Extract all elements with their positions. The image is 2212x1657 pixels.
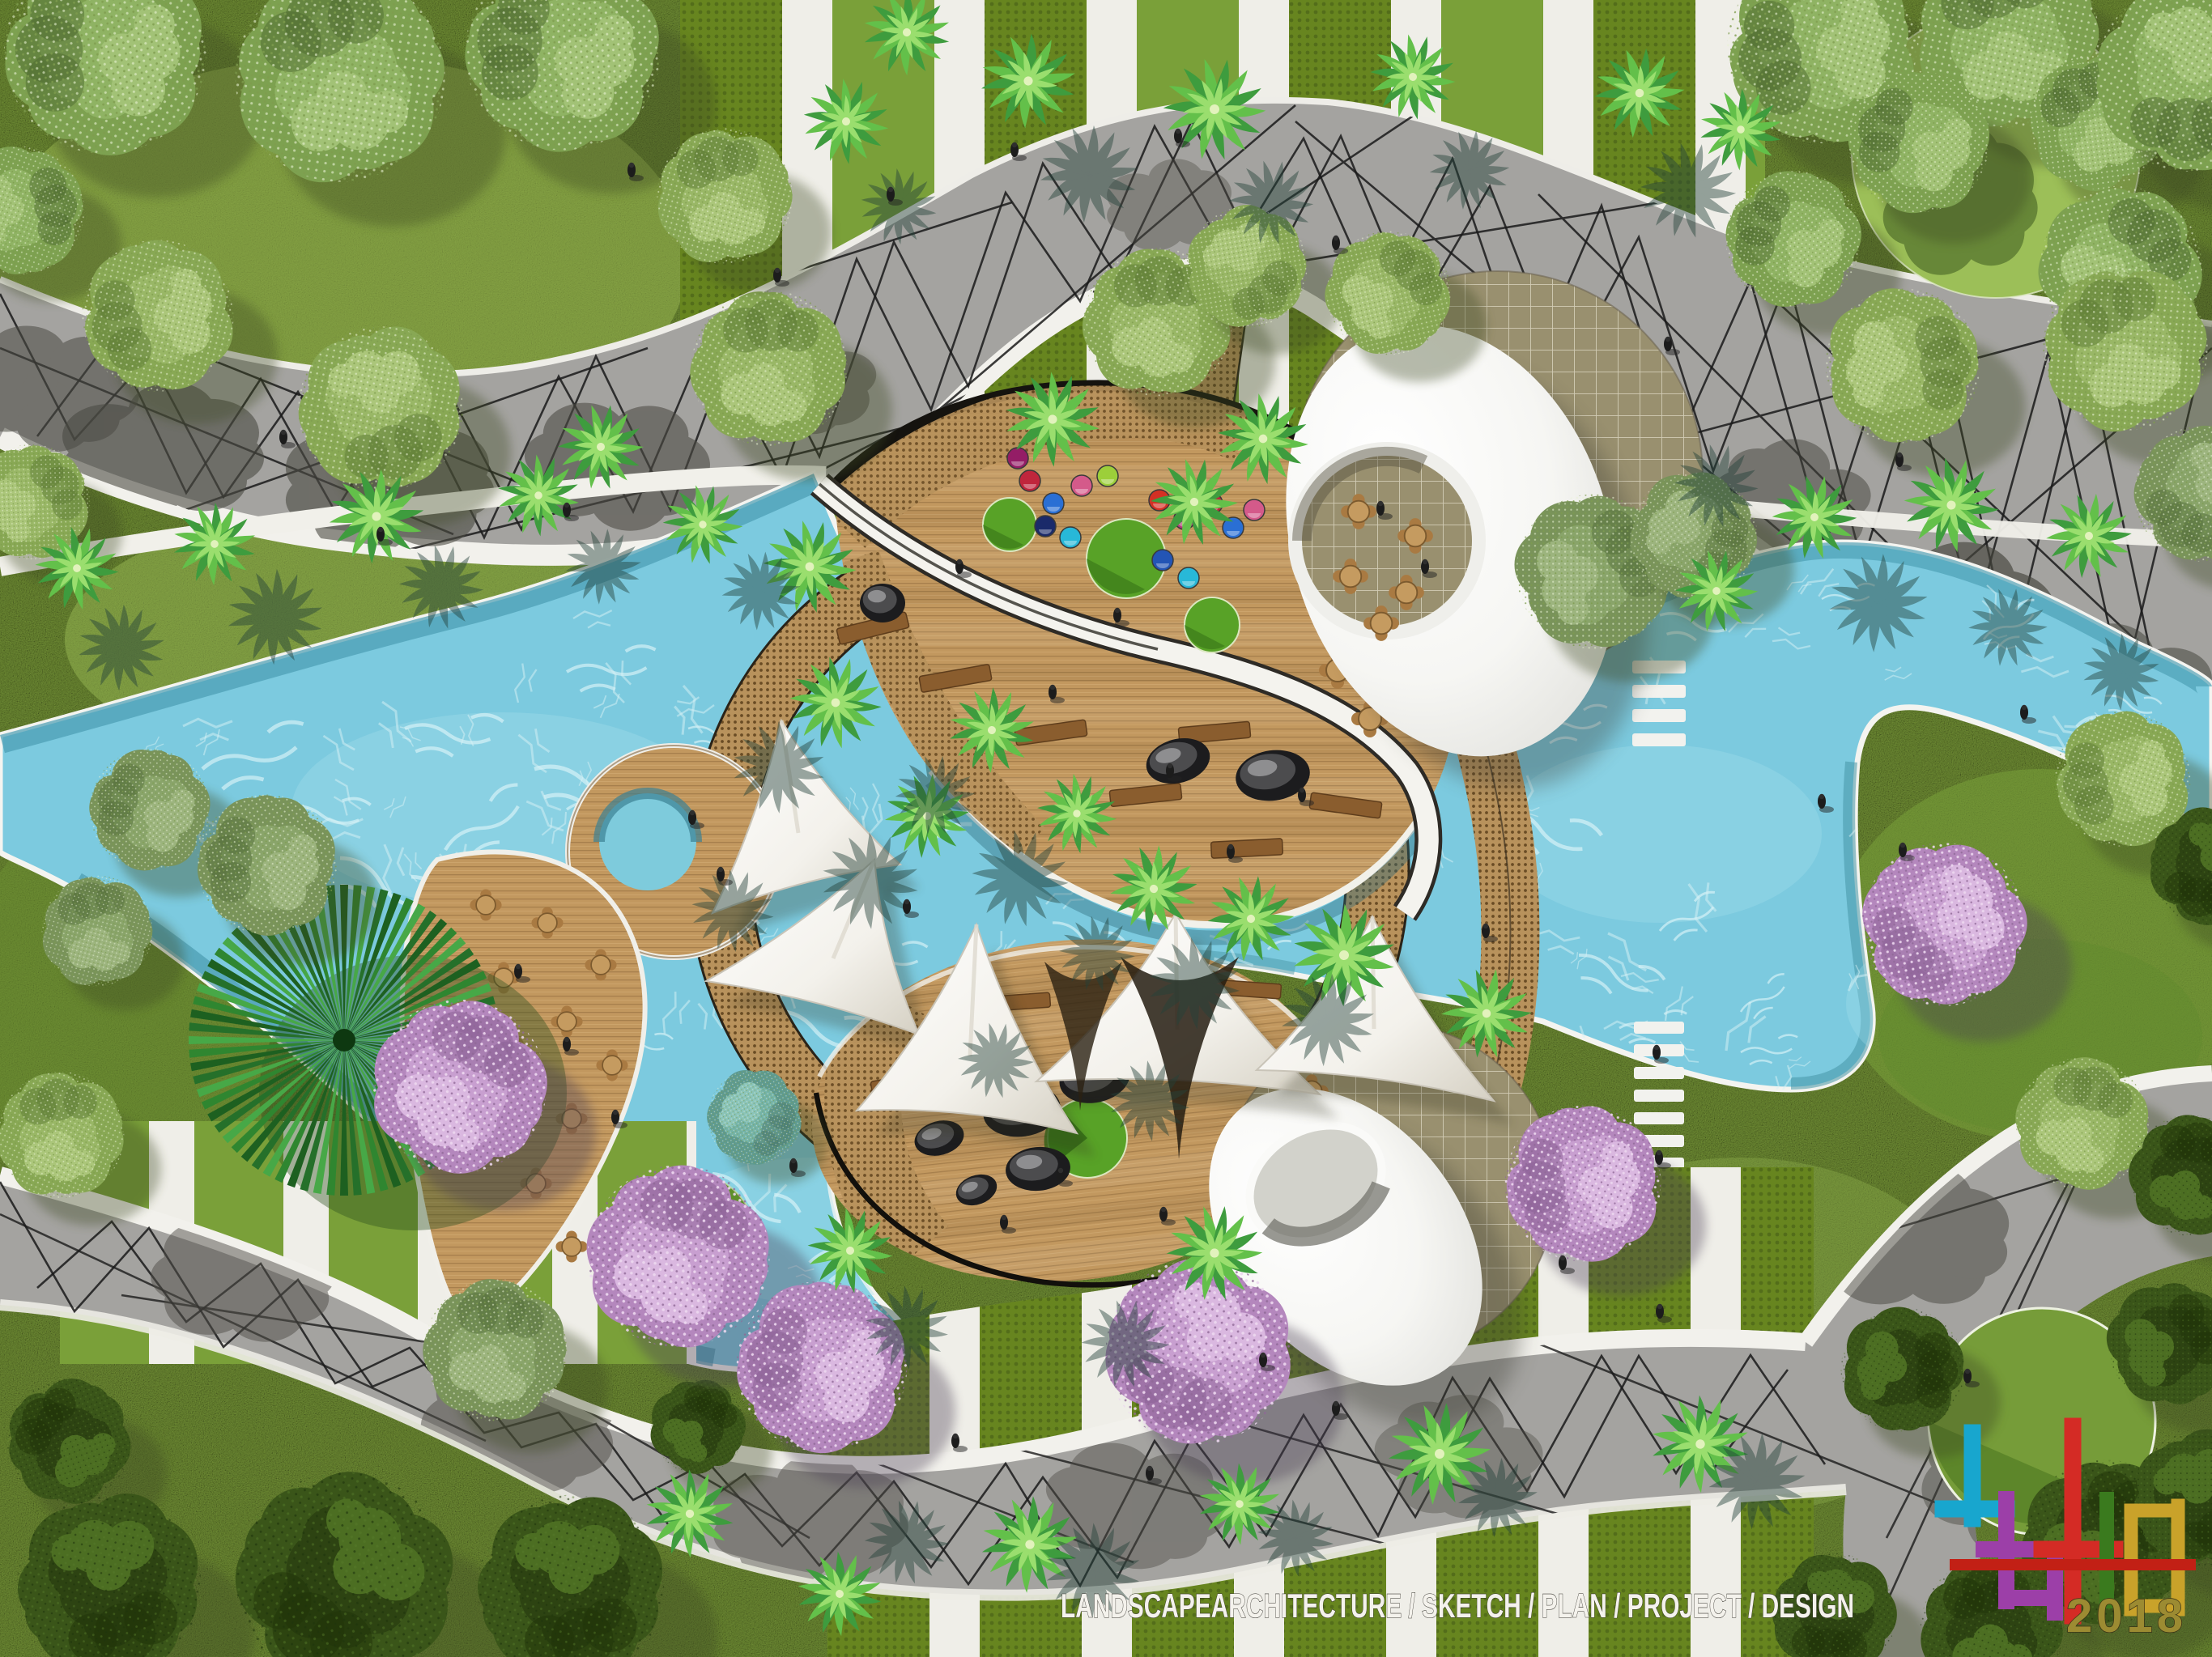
svg-text:2018: 2018 bbox=[2066, 1590, 2187, 1642]
svg-text:LANDSCAPEARCHITECTURE / SKETCH: LANDSCAPEARCHITECTURE / SKETCH / PLAN / … bbox=[1061, 1587, 1854, 1625]
